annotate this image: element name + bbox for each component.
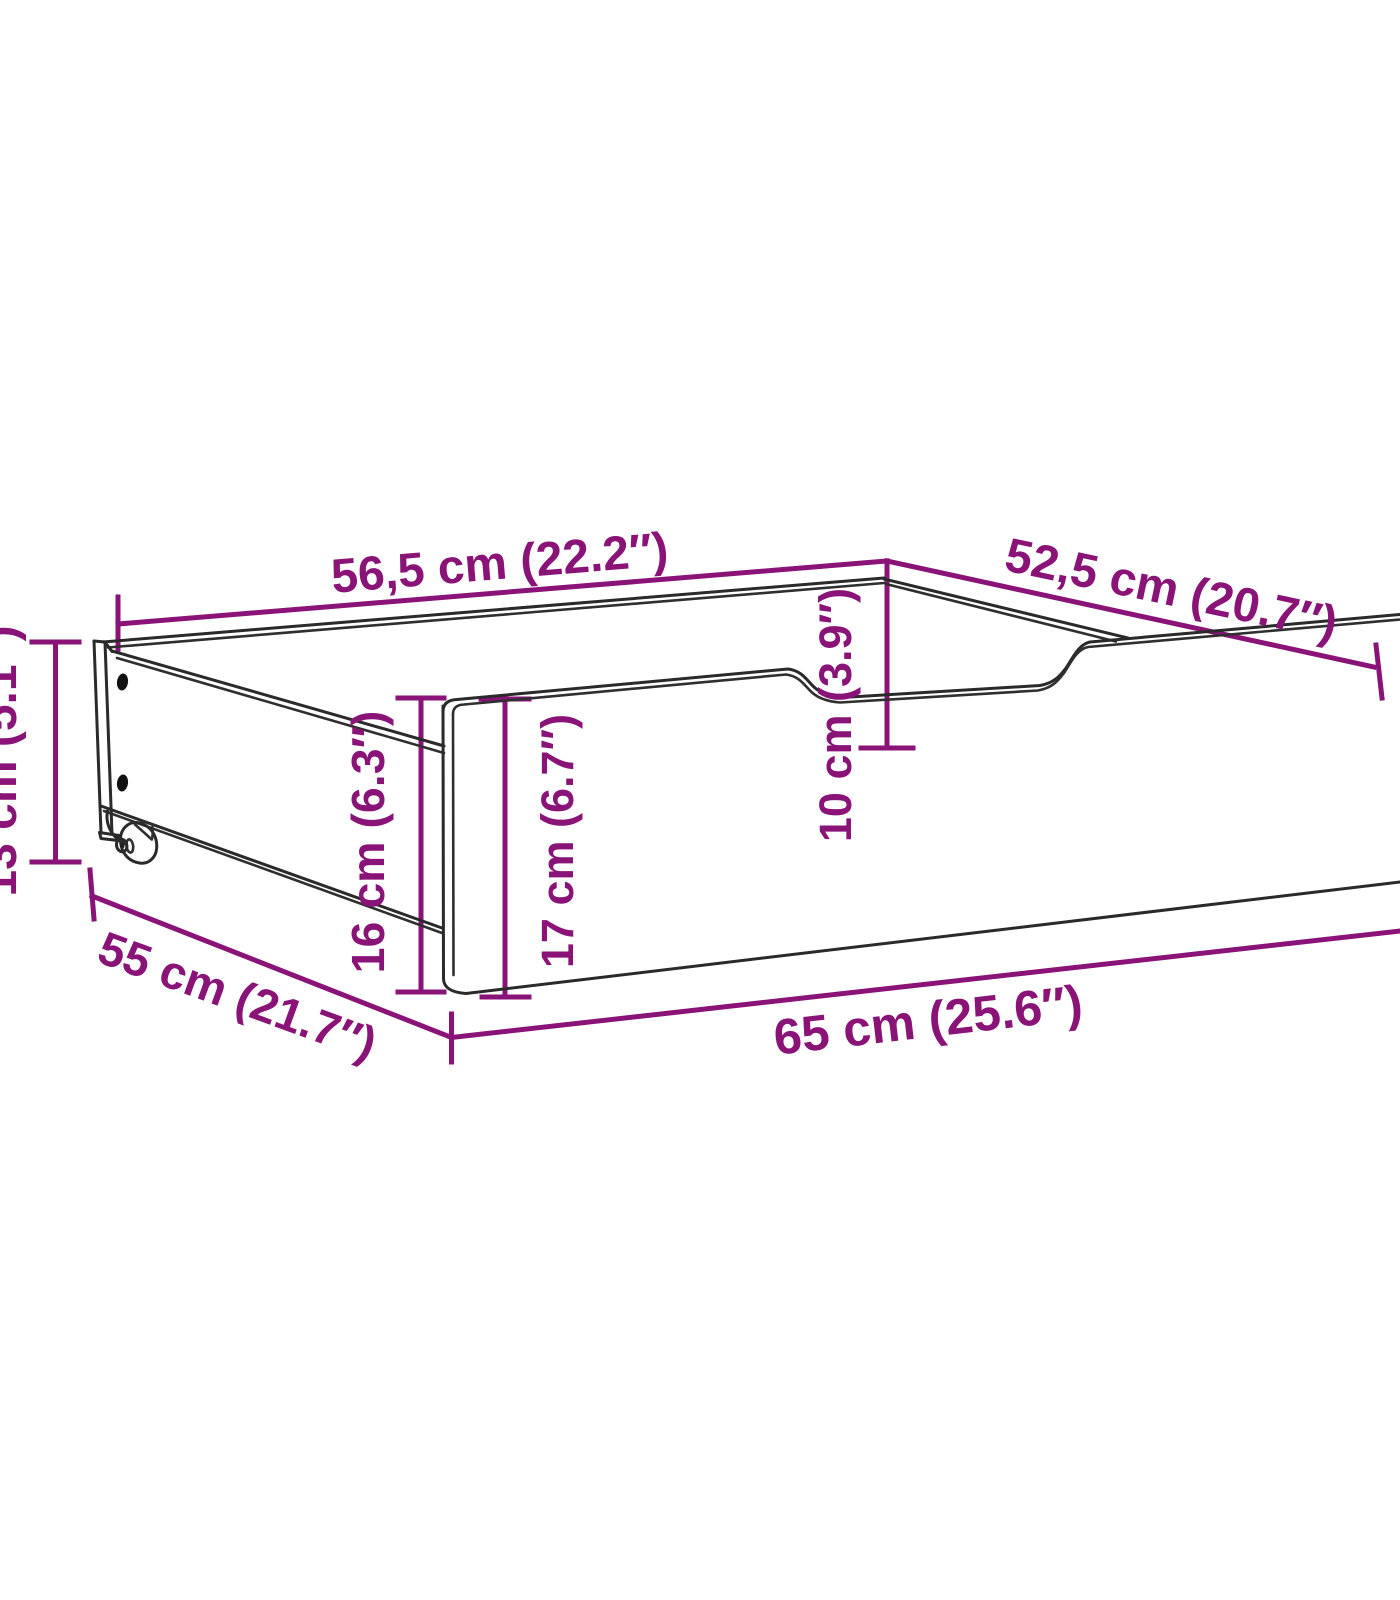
svg-text:16 cm (6.3″): 16 cm (6.3″) <box>342 711 394 974</box>
svg-text:13 cm (5.1″): 13 cm (5.1″) <box>0 625 27 896</box>
svg-text:17 cm (6.7″): 17 cm (6.7″) <box>532 714 583 968</box>
svg-text:10 cm (3.9″): 10 cm (3.9″) <box>810 588 861 842</box>
